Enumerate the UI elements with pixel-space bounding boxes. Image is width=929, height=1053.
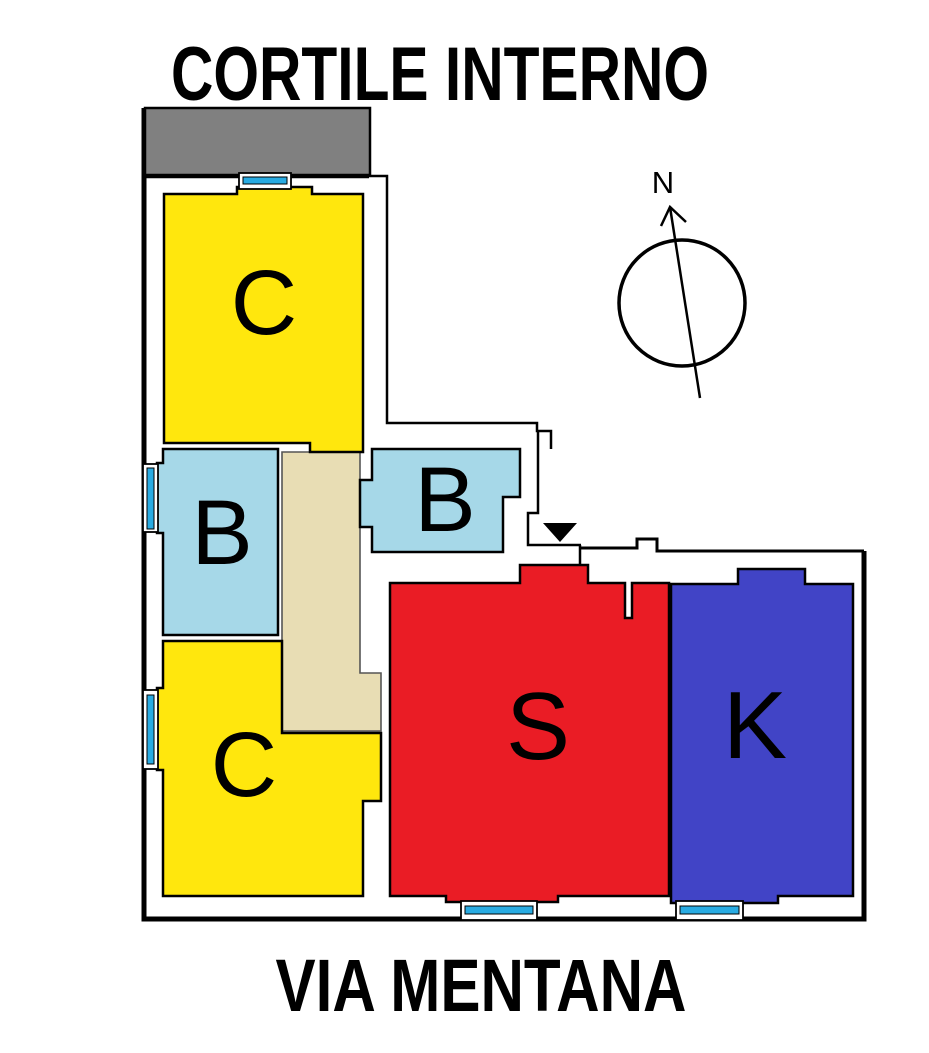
window-glass — [147, 468, 154, 529]
floor-plan: N C B B C S K CORTILE INTERNO VIA MENTAN… — [0, 0, 929, 1053]
window-glass — [243, 177, 287, 184]
room-k-label: K — [723, 672, 787, 779]
compass: N — [619, 165, 745, 398]
window-left-upper — [143, 464, 158, 532]
room-c-lower-label: C — [211, 714, 277, 816]
window-top — [239, 173, 291, 189]
vestibule-wall — [528, 431, 581, 564]
window-glass — [465, 906, 533, 914]
window-bottom-right — [676, 901, 743, 920]
upper-wing-wall — [369, 176, 551, 449]
entrance-arrow — [543, 523, 577, 542]
window-glass — [680, 906, 739, 914]
terrace-block — [145, 108, 370, 175]
courtyard-title: CORTILE INTERNO — [171, 32, 709, 117]
compass-needle — [670, 207, 700, 398]
window-left-lower — [143, 690, 158, 769]
floor-plan-page: N C B B C S K CORTILE INTERNO VIA MENTAN… — [0, 0, 929, 1053]
room-b-left-label: B — [191, 482, 252, 584]
street-side-wall — [580, 539, 864, 551]
window-bottom-left — [461, 901, 537, 920]
window-glass — [147, 695, 154, 764]
compass-circle — [619, 240, 745, 366]
room-c-upper-label: C — [231, 252, 297, 354]
compass-north-label: N — [652, 165, 674, 200]
street-title: VIA MENTANA — [276, 944, 687, 1027]
room-b-right-label: B — [414, 449, 475, 551]
room-s-label: S — [506, 673, 570, 780]
